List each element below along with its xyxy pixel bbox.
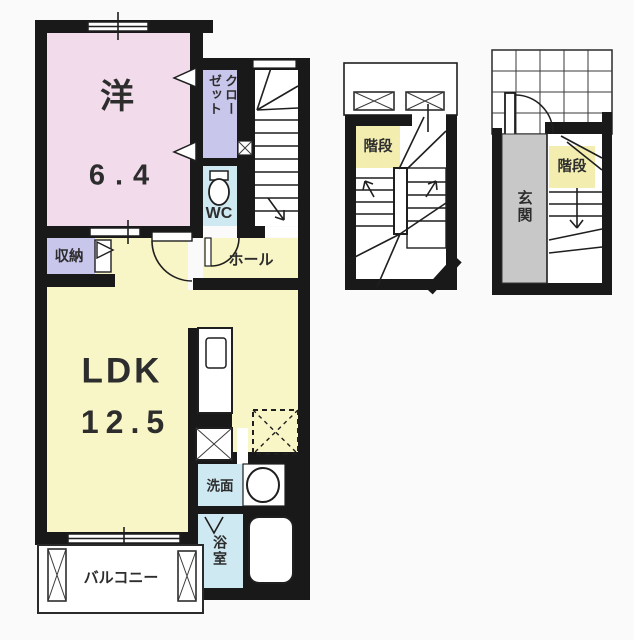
balcony-xbox-right <box>178 551 196 601</box>
stairs-2f-label: 階段 <box>364 140 393 155</box>
bathtub-icon <box>249 517 293 583</box>
floorplan-drawing <box>0 0 634 640</box>
western-room-label: 洋 <box>100 80 136 114</box>
stairs-xbox-2 <box>406 92 444 110</box>
western-room-area: 6.4 <box>89 162 159 191</box>
washbasin-icon <box>243 464 285 506</box>
stairs-hall-opening <box>265 227 298 237</box>
stairs-1f-label: 階段 <box>558 160 587 175</box>
upper-stairs-floor <box>255 68 298 226</box>
floorplan-canvas: 洋 6.4 クロー ゼット WC 収納 ホール LDK 12.5 洗面 浴室 バ… <box>0 0 634 640</box>
wc-label: WC <box>206 206 233 222</box>
western-room <box>47 33 190 226</box>
storage-door <box>95 240 113 272</box>
ldk-label: LDK <box>82 354 163 389</box>
washer-space <box>196 428 232 460</box>
storage-label: 収納 <box>55 250 84 265</box>
balcony-xbox-left <box>48 549 66 601</box>
entrance-section-1f <box>492 50 612 295</box>
sink-icon <box>206 338 226 368</box>
washroom-door-gap <box>237 428 248 468</box>
window-stairs-top <box>253 60 296 68</box>
closet-xbox <box>238 141 252 155</box>
entrance-label: 玄関 <box>517 190 532 224</box>
main-unit <box>35 12 310 613</box>
toilet-icon <box>209 171 229 205</box>
ldk-area: 12.5 <box>81 406 171 438</box>
stairs-xbox-1 <box>354 92 394 110</box>
kitchen-counter <box>198 328 232 413</box>
stairwell-opening <box>412 113 446 126</box>
bathroom-label: 浴室 <box>213 535 227 567</box>
stair-section-2f <box>344 63 458 291</box>
hall-label: ホール <box>228 253 273 268</box>
washroom-label: 洗面 <box>207 479 234 493</box>
balcony-label: バルコニー <box>84 571 159 586</box>
closet-label: クロー ゼット <box>204 74 238 158</box>
